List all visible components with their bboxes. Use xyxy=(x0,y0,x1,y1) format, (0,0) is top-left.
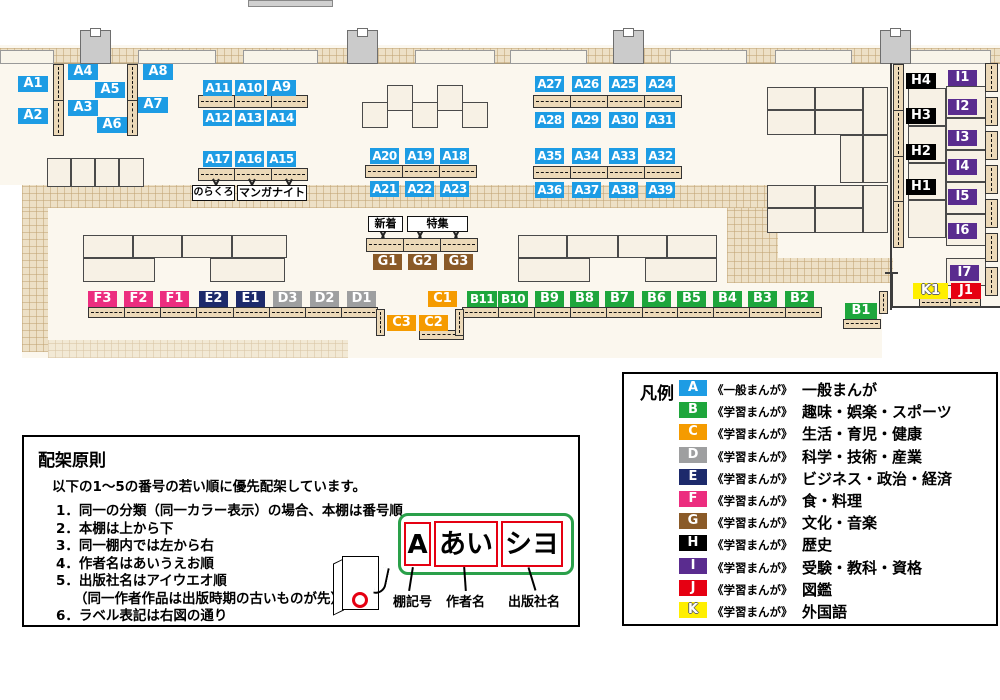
legend-category-label: ビジネス・政治・経済 xyxy=(802,468,952,489)
table-block xyxy=(908,200,946,238)
shelf-label-a38: A38 xyxy=(609,182,638,198)
table-block xyxy=(462,102,488,128)
shelf-label-a20: A20 xyxy=(370,148,399,164)
shelf-label-a22: A22 xyxy=(405,181,434,197)
shelf-strip xyxy=(985,199,998,228)
shelf-label-a9: A9 xyxy=(267,80,296,96)
shelf-label-a11: A11 xyxy=(203,80,232,96)
legend-series-type: 《学習まんが》 xyxy=(712,515,793,531)
caption-author: 作者名 xyxy=(446,591,485,610)
shelf-bar xyxy=(365,165,477,178)
legend-letter-badge: F xyxy=(679,491,707,507)
table-block xyxy=(83,258,155,282)
area-callout-feature: 特集 xyxy=(407,216,468,232)
table-block xyxy=(767,110,815,135)
shelf-label-a1: A1 xyxy=(18,76,48,92)
shelf-label-e2: E2 xyxy=(199,291,228,307)
legend-series-type: 《学習まんが》 xyxy=(712,537,793,553)
shelf-label-h1: H1 xyxy=(906,179,936,195)
shelf-label-g3: G3 xyxy=(444,254,473,270)
shelf-strip xyxy=(127,64,138,136)
wall-segment xyxy=(670,50,747,64)
shelf-label-f2: F2 xyxy=(124,291,153,307)
shelf-label-b7: B7 xyxy=(605,291,634,307)
shelf-bar xyxy=(88,307,378,318)
table-block xyxy=(667,235,717,258)
table-block xyxy=(210,258,285,282)
shelf-label-h4: H4 xyxy=(906,73,936,89)
shelf-label-a29: A29 xyxy=(572,112,601,128)
shelf-label-f1: F1 xyxy=(160,291,189,307)
legend-series-type: 《学習まんが》 xyxy=(712,471,793,487)
shelf-label-a6: A6 xyxy=(97,117,127,133)
legend-row-d: D《学習まんが》科学・技術・産業 xyxy=(624,447,996,465)
wall-line xyxy=(891,272,893,308)
shelf-label-a25: A25 xyxy=(609,76,638,92)
wall-segment xyxy=(775,50,852,64)
legend-box: 凡例 A《一般まんが》一般まんがB《学習まんが》趣味・娯楽・スポーツC《学習まん… xyxy=(622,372,998,626)
legend-letter-badge: D xyxy=(679,447,707,463)
shelf-label-a34: A34 xyxy=(572,148,601,164)
table-block xyxy=(567,235,618,258)
shelf-label-a24: A24 xyxy=(646,76,675,92)
legend-category-label: 受験・教科・資格 xyxy=(802,557,922,578)
legend-row-j: J《学習まんが》図鑑 xyxy=(624,580,996,598)
legend-row-f: F《学習まんが》食・料理 xyxy=(624,491,996,509)
wall-segment xyxy=(138,50,216,64)
shelf-label-b11: B11 xyxy=(467,291,497,307)
shelf-label-a7: A7 xyxy=(138,97,168,113)
area-callout-manganight: マンガナイト xyxy=(237,185,307,201)
shelf-label-a26: A26 xyxy=(572,76,601,92)
table-block xyxy=(645,258,717,282)
principles-intro: 以下の1～5の番号の若い順に優先配架しています。 xyxy=(52,475,366,495)
shelf-label-a36: A36 xyxy=(535,182,564,198)
legend-category-label: 科学・技術・産業 xyxy=(802,446,922,467)
shelf-label-c2: C2 xyxy=(419,315,448,331)
shelf-label-a23: A23 xyxy=(440,181,469,197)
shelf-strip xyxy=(985,131,998,160)
shelf-label-a35: A35 xyxy=(535,148,564,164)
legend-letter-badge: H xyxy=(679,535,707,551)
legend-row-a: A《一般まんが》一般まんが xyxy=(624,380,996,398)
legend-category-label: 文化・音楽 xyxy=(802,512,877,533)
shelf-label-f3: F3 xyxy=(88,291,117,307)
wall-segment xyxy=(903,50,991,64)
hatched-walkway xyxy=(48,340,348,358)
shelf-label-b3: B3 xyxy=(748,291,777,307)
shelf-label-a12: A12 xyxy=(203,110,232,126)
legend-row-g: G《学習まんが》文化・音楽 xyxy=(624,513,996,531)
label-position-circle-icon xyxy=(352,592,368,608)
table-block xyxy=(232,235,287,258)
legend-letter-badge: G xyxy=(679,513,707,529)
table-block xyxy=(95,158,119,187)
shelf-label-i6: I6 xyxy=(948,223,977,239)
shelf-strip xyxy=(985,267,998,296)
wall-segment xyxy=(415,50,495,64)
shelf-strip xyxy=(893,64,904,248)
legend-category-label: 趣味・娯楽・スポーツ xyxy=(802,401,952,422)
label-publisher: シヨ xyxy=(501,521,563,567)
legend-category-label: 食・料理 xyxy=(802,490,862,511)
shelf-label-b6: B6 xyxy=(642,291,671,307)
legend-series-type: 《学習まんが》 xyxy=(712,560,793,576)
shelf-strip xyxy=(985,165,998,194)
shelf-label-c3: C3 xyxy=(387,315,416,331)
table-block xyxy=(618,235,667,258)
legend-row-c: C《学習まんが》生活・育児・健康 xyxy=(624,424,996,442)
legend-category-label: 外国語 xyxy=(802,601,847,622)
table-block xyxy=(863,135,888,183)
table-block xyxy=(182,235,232,258)
callout-pointer xyxy=(415,231,424,238)
table-block xyxy=(815,110,863,135)
legend-series-type: 《学習まんが》 xyxy=(712,604,793,620)
shelf-label-i2: I2 xyxy=(948,99,977,115)
legend-series-type: 《学習まんが》 xyxy=(712,404,793,420)
wall-line xyxy=(885,272,898,274)
legend-row-k: K《学習まんが》外国語 xyxy=(624,602,996,620)
principle-item-5-note: （同一作者作品は出版時期の古いものが先） xyxy=(74,587,344,607)
legend-series-type: 《学習まんが》 xyxy=(712,493,793,509)
table-block xyxy=(767,87,815,110)
shelf-label-b5: B5 xyxy=(677,291,706,307)
shelf-strip xyxy=(879,291,888,314)
wall-segment xyxy=(243,50,318,64)
legend-letter-badge: E xyxy=(679,469,707,485)
shelf-label-a19: A19 xyxy=(405,148,434,164)
table-block xyxy=(518,258,590,282)
legend-series-type: 《学習まんが》 xyxy=(712,582,793,598)
legend-row-h: H《学習まんが》歴史 xyxy=(624,535,996,553)
principle-item-6: 6．ラベル表記は右図の通り xyxy=(56,604,227,624)
legend-row-b: B《学習まんが》趣味・娯楽・スポーツ xyxy=(624,402,996,420)
shelf-label-a3: A3 xyxy=(68,100,98,116)
table-block xyxy=(133,235,182,258)
table-block xyxy=(119,158,144,187)
table-block xyxy=(387,85,413,111)
shelf-bar xyxy=(366,238,478,252)
pillar-notch xyxy=(623,28,634,37)
shelf-label-b10: B10 xyxy=(498,291,528,307)
area-callout-new-arrivals: 新着 xyxy=(368,216,403,232)
shelf-strip xyxy=(985,233,998,262)
principles-title: 配架原則 xyxy=(38,446,106,471)
legend-letter-badge: K xyxy=(679,602,707,618)
shelf-label-b2: B2 xyxy=(785,291,814,307)
shelf-label-a27: A27 xyxy=(535,76,564,92)
callout-pointer xyxy=(378,231,387,238)
table-block xyxy=(518,235,567,258)
area-callout-norakuro: のらくろ xyxy=(192,185,235,201)
table-block xyxy=(83,235,133,258)
legend-category-label: 歴史 xyxy=(802,534,832,555)
shelf-label-a13: A13 xyxy=(235,110,264,126)
legend-row-i: I《学習まんが》受験・教科・資格 xyxy=(624,558,996,576)
shelf-label-j1: J1 xyxy=(951,283,981,299)
caption-publisher: 出版社名 xyxy=(508,591,560,610)
shelf-strip xyxy=(53,64,64,136)
shelf-label-a10: A10 xyxy=(235,80,264,96)
hatched-walkway xyxy=(727,258,893,283)
table-block xyxy=(362,102,388,128)
shelf-label-d1: D1 xyxy=(347,291,376,307)
legend-letter-badge: J xyxy=(679,580,707,596)
shelf-label-a17: A17 xyxy=(203,151,232,167)
table-block xyxy=(47,158,71,187)
shelf-label-a16: A16 xyxy=(235,151,264,167)
shelf-label-i1: I1 xyxy=(948,70,977,86)
shelf-bar xyxy=(533,95,682,108)
table-block xyxy=(863,87,888,135)
shelf-strip xyxy=(455,309,464,336)
shelf-label-a18: A18 xyxy=(440,148,469,164)
table-block xyxy=(412,102,438,128)
legend-letter-badge: I xyxy=(679,558,707,574)
shelf-label-a4: A4 xyxy=(68,64,98,80)
shelf-label-g1: G1 xyxy=(373,254,402,270)
shelf-label-d2: D2 xyxy=(310,291,339,307)
shelf-label-i7: I7 xyxy=(950,265,979,281)
shelf-label-i4: I4 xyxy=(948,159,977,175)
shelf-label-h2: H2 xyxy=(906,144,936,160)
shelf-label-a2: A2 xyxy=(18,108,48,124)
shelf-label-i5: I5 xyxy=(948,189,977,205)
shelf-label-a32: A32 xyxy=(646,148,675,164)
shelf-label-a31: A31 xyxy=(646,112,675,128)
table-block xyxy=(863,185,888,233)
shelf-label-a15: A15 xyxy=(267,151,296,167)
shelf-strip xyxy=(985,97,998,126)
pillar-notch xyxy=(90,28,101,37)
shelf-strip xyxy=(376,309,385,336)
callout-pointer xyxy=(451,231,460,238)
floor-map-page: A1A2A3A4A5A6A7A8A9A10A11A12A13A14A15A16A… xyxy=(0,0,1000,700)
wall-segment xyxy=(0,50,54,64)
shelf-label-a21: A21 xyxy=(370,181,399,197)
shelf-bar xyxy=(198,95,308,108)
legend-category-label: 生活・育児・健康 xyxy=(802,423,922,444)
hatched-walkway xyxy=(22,208,48,352)
table-block xyxy=(437,85,463,111)
legend-letter-badge: B xyxy=(679,402,707,418)
shelf-label-d3: D3 xyxy=(273,291,302,307)
shelf-label-g2: G2 xyxy=(408,254,437,270)
shelf-label-a8: A8 xyxy=(143,64,173,80)
shelf-bar xyxy=(462,307,822,318)
wall-segment xyxy=(510,50,587,64)
shelf-bar xyxy=(843,319,881,329)
legend-letter-badge: A xyxy=(679,380,707,396)
legend-letter-badge: C xyxy=(679,424,707,440)
table-block xyxy=(767,208,815,233)
shelf-label-a37: A37 xyxy=(572,182,601,198)
door xyxy=(248,0,333,7)
shelf-strip xyxy=(985,63,998,92)
shelf-label-b8: B8 xyxy=(570,291,599,307)
table-block xyxy=(815,87,863,110)
legend-row-e: E《学習まんが》ビジネス・政治・経済 xyxy=(624,469,996,487)
shelf-bar xyxy=(533,166,682,179)
label-shelf-code: A xyxy=(404,522,431,566)
shelf-label-e1: E1 xyxy=(236,291,265,307)
pillar-notch xyxy=(890,28,901,37)
legend-series-type: 《一般まんが》 xyxy=(712,382,793,398)
table-block xyxy=(71,158,95,187)
shelf-label-a33: A33 xyxy=(609,148,638,164)
shelf-label-b1: B1 xyxy=(845,303,877,319)
table-block xyxy=(840,135,863,183)
table-block xyxy=(815,208,863,233)
legend-series-type: 《学習まんが》 xyxy=(712,426,793,442)
legend-category-label: 図鑑 xyxy=(802,579,832,600)
shelf-label-a5: A5 xyxy=(95,82,125,98)
table-block xyxy=(767,185,815,208)
shelf-label-a39: A39 xyxy=(646,182,675,198)
legend-series-type: 《学習まんが》 xyxy=(712,449,793,465)
pillar-notch xyxy=(357,28,368,37)
shelf-label-b9: B9 xyxy=(535,291,564,307)
shelf-label-k1: K1 xyxy=(913,283,948,299)
table-block xyxy=(815,185,863,208)
caption-shelf-code: 棚記号 xyxy=(393,591,432,610)
wall-line xyxy=(893,306,1000,308)
legend-category-label: 一般まんが xyxy=(802,379,877,400)
shelf-label-a30: A30 xyxy=(609,112,638,128)
shelf-label-h3: H3 xyxy=(906,108,936,124)
shelf-label-a28: A28 xyxy=(535,112,564,128)
shelf-label-b4: B4 xyxy=(713,291,742,307)
label-author: あい xyxy=(434,521,498,567)
shelf-label-i3: I3 xyxy=(948,130,977,146)
shelf-label-c1: C1 xyxy=(428,291,457,307)
shelf-label-a14: A14 xyxy=(267,110,296,126)
